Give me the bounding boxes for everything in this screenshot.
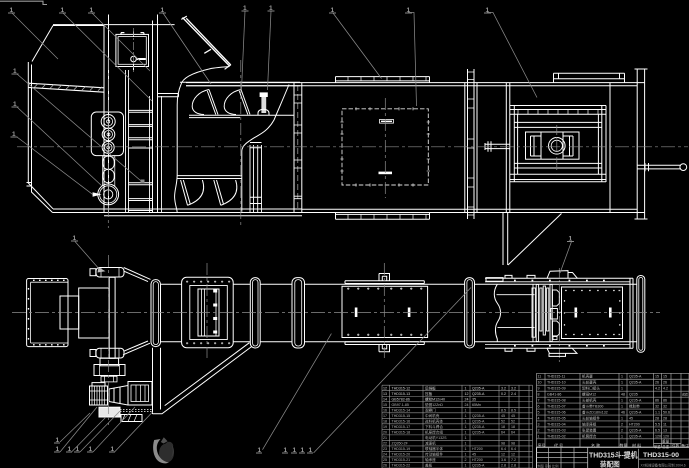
svg-text:15: 15 <box>655 375 659 379</box>
svg-text:9: 9 <box>538 387 540 391</box>
svg-text:机壳罩: 机壳罩 <box>582 374 593 379</box>
svg-text:1: 1 <box>465 419 467 423</box>
svg-text:3.2: 3.2 <box>511 386 516 390</box>
svg-text:45: 45 <box>629 416 633 420</box>
svg-text:Q235-A: Q235-A <box>472 386 485 390</box>
svg-text:26: 26 <box>383 464 387 468</box>
svg-text:中间机壳: 中间机壳 <box>425 413 440 418</box>
svg-text:18: 18 <box>511 425 515 429</box>
svg-text:GB41-86: GB41-86 <box>547 393 561 397</box>
svg-text:11: 11 <box>663 422 667 426</box>
svg-text:12: 12 <box>465 392 469 396</box>
svg-text:1: 1 <box>621 405 623 409</box>
svg-text:120: 120 <box>663 434 669 438</box>
svg-text:1: 1 <box>621 387 623 391</box>
svg-text:HT200: HT200 <box>629 422 640 426</box>
svg-text:重量: 重量 <box>662 439 670 444</box>
svg-text:1: 1 <box>465 464 467 468</box>
svg-text:4.2: 4.2 <box>663 387 668 391</box>
svg-text:12: 12 <box>501 453 505 457</box>
svg-text:98: 98 <box>501 442 505 446</box>
svg-text:联轴器半体: 联轴器半体 <box>425 446 443 451</box>
svg-text:总重: 总重 <box>662 444 669 449</box>
svg-text:畚斗ZD180x132: 畚斗ZD180x132 <box>582 409 608 414</box>
svg-text:THD315-17: THD315-17 <box>392 425 411 429</box>
svg-text:1: 1 <box>465 414 467 418</box>
svg-text:THD315-00: THD315-00 <box>643 452 679 459</box>
svg-text:1: 1 <box>465 425 467 429</box>
svg-text:THD315-06: THD315-06 <box>547 410 566 414</box>
svg-text:Q235-A: Q235-A <box>472 414 485 418</box>
svg-text:22: 22 <box>383 442 387 446</box>
svg-text:26: 26 <box>655 381 659 385</box>
svg-text:HT200: HT200 <box>472 447 483 451</box>
svg-text:装配图: 装配图 <box>599 460 620 468</box>
svg-text:2.8: 2.8 <box>501 464 506 468</box>
svg-text:13: 13 <box>383 392 387 396</box>
svg-text:1: 1 <box>621 416 623 420</box>
svg-text:8.5: 8.5 <box>501 408 506 412</box>
svg-text:1: 1 <box>621 434 623 438</box>
svg-text:THD315-22: THD315-22 <box>392 464 411 468</box>
svg-text:畚斗带TB300: 畚斗带TB300 <box>582 404 603 409</box>
svg-text:张紧装置: 张紧装置 <box>582 427 597 432</box>
svg-text:8: 8 <box>538 393 540 397</box>
svg-text:5.5: 5.5 <box>655 422 660 426</box>
svg-text:减速机: 减速机 <box>425 441 436 446</box>
svg-text:35: 35 <box>472 397 476 401</box>
svg-text:THD315-04: THD315-04 <box>547 422 566 426</box>
svg-text:32: 32 <box>655 405 659 409</box>
svg-text:2: 2 <box>538 428 540 432</box>
svg-text:52: 52 <box>511 419 515 423</box>
svg-text:7: 7 <box>538 399 540 403</box>
svg-text:1: 1 <box>621 375 623 379</box>
svg-text:THD315-09: THD315-09 <box>547 387 566 391</box>
svg-text:6: 6 <box>538 405 540 409</box>
svg-text:THD315-15: THD315-15 <box>392 414 411 418</box>
svg-text:16: 16 <box>383 408 387 412</box>
svg-text:Q235-A: Q235-A <box>629 428 642 432</box>
svg-text:机筒焊合: 机筒焊合 <box>582 433 597 438</box>
svg-text:头部机壳: 头部机壳 <box>582 398 597 403</box>
svg-text:单重: 单重 <box>654 444 661 449</box>
svg-text:45: 45 <box>501 414 505 418</box>
svg-text:26: 26 <box>663 381 667 385</box>
svg-text:17: 17 <box>383 414 387 418</box>
svg-text:THD315-13: THD315-13 <box>392 392 411 396</box>
svg-text:1: 1 <box>621 381 623 385</box>
svg-text:120: 120 <box>655 434 661 438</box>
svg-text:THD315-10: THD315-10 <box>547 381 566 385</box>
svg-text:18: 18 <box>501 425 505 429</box>
svg-text:1: 1 <box>465 442 467 446</box>
svg-text:THD315-19: THD315-19 <box>392 447 411 451</box>
svg-text:14: 14 <box>383 397 387 401</box>
svg-text:轴承座组: 轴承座组 <box>582 421 597 426</box>
svg-text:GB5782-86: GB5782-86 <box>392 397 410 401</box>
svg-text:6.5: 6.5 <box>655 428 660 432</box>
svg-text:10: 10 <box>538 381 542 385</box>
svg-text:13: 13 <box>663 428 667 432</box>
svg-text:盖板: 盖板 <box>425 463 433 468</box>
svg-text:2: 2 <box>621 422 623 426</box>
svg-text:THD315斗-提机: THD315斗-提机 <box>589 450 638 459</box>
svg-text:86: 86 <box>663 399 667 403</box>
svg-text:7.2: 7.2 <box>511 458 516 462</box>
svg-text:Q235-A: Q235-A <box>629 375 642 379</box>
svg-text:50.6: 50.6 <box>663 410 670 414</box>
svg-text:23: 23 <box>383 447 387 451</box>
svg-text:Q235-A: Q235-A <box>629 410 642 414</box>
svg-text:11: 11 <box>538 375 542 379</box>
svg-text:橡胶带: 橡胶带 <box>629 404 640 409</box>
svg-text:1: 1 <box>465 447 467 451</box>
svg-text:观察门: 观察门 <box>425 407 436 412</box>
svg-text:Q235-A: Q235-A <box>472 392 485 396</box>
svg-text:头轮轴组件: 头轮轴组件 <box>582 415 600 420</box>
svg-text:Q235-A: Q235-A <box>629 381 642 385</box>
svg-text:1: 1 <box>465 408 467 412</box>
svg-text:24: 24 <box>383 453 387 457</box>
svg-text:48: 48 <box>621 393 625 397</box>
svg-text:Q235-A: Q235-A <box>629 434 642 438</box>
svg-text:螺栓M12x40: 螺栓M12x40 <box>425 396 445 401</box>
svg-text:65Mn: 65Mn <box>472 403 481 407</box>
svg-text:THD315-11: THD315-11 <box>547 375 565 379</box>
svg-text:机座焊合组: 机座焊合组 <box>425 429 443 434</box>
svg-text:8.5: 8.5 <box>511 408 516 412</box>
svg-text:18: 18 <box>383 419 387 423</box>
svg-text:3: 3 <box>538 422 540 426</box>
svg-text:52: 52 <box>501 419 505 423</box>
svg-text:4: 4 <box>538 416 540 420</box>
svg-text:THD315-20: THD315-20 <box>392 453 411 457</box>
svg-text:轴承座: 轴承座 <box>425 457 436 462</box>
svg-text:1: 1 <box>621 399 623 403</box>
svg-text:Q235-A: Q235-A <box>472 419 485 423</box>
svg-text:制图 审核 比例: 制图 审核 比例 <box>538 464 559 468</box>
svg-text:5: 5 <box>538 410 540 414</box>
svg-text:THD315-05: THD315-05 <box>547 416 566 420</box>
svg-text:15: 15 <box>663 375 667 379</box>
svg-text:2.4: 2.4 <box>511 392 516 396</box>
svg-text:THD315-18: THD315-18 <box>392 430 411 434</box>
svg-text:19: 19 <box>383 425 387 429</box>
svg-text:Q235-A: Q235-A <box>629 399 642 403</box>
svg-text:0.2: 0.2 <box>501 392 506 396</box>
svg-text:24: 24 <box>465 397 469 401</box>
svg-text:15: 15 <box>383 403 387 407</box>
svg-text:12: 12 <box>383 386 387 390</box>
svg-text:46: 46 <box>621 410 625 414</box>
svg-text:4.2: 4.2 <box>655 387 660 391</box>
svg-text:28: 28 <box>663 416 667 420</box>
svg-text:20: 20 <box>383 430 387 434</box>
svg-text:1: 1 <box>538 434 540 438</box>
svg-text:THD315-03: THD315-03 <box>547 428 566 432</box>
svg-text:Q235-A: Q235-A <box>472 425 485 429</box>
svg-text:螺母M12: 螺母M12 <box>582 392 596 397</box>
svg-text:GB97.1-85: GB97.1-85 <box>392 403 409 407</box>
svg-text:45: 45 <box>472 453 476 457</box>
svg-text:HT200: HT200 <box>472 458 483 462</box>
svg-text:Q235-A: Q235-A <box>472 464 485 468</box>
svg-text:24: 24 <box>465 403 469 407</box>
svg-text:THD315-08: THD315-08 <box>547 399 566 403</box>
svg-text:传动轴组件: 传动轴组件 <box>425 452 443 457</box>
svg-text:64: 64 <box>511 430 515 434</box>
svg-text:电动机Y132S: 电动机Y132S <box>425 435 447 440</box>
svg-text:1.1: 1.1 <box>655 410 660 414</box>
svg-text:垫圈12ZnD: 垫圈12ZnD <box>425 402 443 407</box>
svg-text:28: 28 <box>655 416 659 420</box>
svg-text:1: 1 <box>465 453 467 457</box>
svg-text:Q235-A: Q235-A <box>472 430 485 434</box>
svg-text:3.2: 3.2 <box>501 386 506 390</box>
svg-text:进料机壳体: 进料机壳体 <box>425 418 443 423</box>
svg-text:压板: 压板 <box>425 391 433 396</box>
svg-text:卸料口接头: 卸料口接头 <box>582 386 600 391</box>
svg-text:6.4: 6.4 <box>501 447 506 451</box>
svg-text:6.4: 6.4 <box>511 447 516 451</box>
svg-text:98: 98 <box>511 442 515 446</box>
svg-text:3.6: 3.6 <box>501 458 506 462</box>
svg-text:1: 1 <box>465 430 467 434</box>
svg-text:THD315-14: THD315-14 <box>392 408 411 412</box>
svg-text:成套: 成套 <box>682 392 688 397</box>
svg-text:45: 45 <box>511 414 515 418</box>
svg-text:XX机械设备有限公司制 2004.6: XX机械设备有限公司制 2004.6 <box>641 462 686 467</box>
svg-text:1: 1 <box>465 436 467 440</box>
svg-text:下料斗焊合: 下料斗焊合 <box>425 424 443 429</box>
svg-text:THD315-02: THD315-02 <box>547 434 566 438</box>
svg-text:THD315-16: THD315-16 <box>392 419 411 423</box>
svg-text:25: 25 <box>383 458 387 462</box>
svg-text:头轮罩壳: 头轮罩壳 <box>582 380 597 385</box>
svg-text:32: 32 <box>663 405 667 409</box>
svg-text:Q235: Q235 <box>629 393 638 397</box>
svg-text:THD315-12: THD315-12 <box>392 386 411 390</box>
svg-text:ZQ350-2F: ZQ350-2F <box>392 442 409 446</box>
svg-text:THD315-07: THD315-07 <box>547 405 566 409</box>
svg-text:12: 12 <box>511 453 515 457</box>
svg-text:64: 64 <box>501 430 505 434</box>
svg-text:2.8: 2.8 <box>511 464 516 468</box>
svg-text:后挡板: 后挡板 <box>425 385 436 390</box>
svg-text:1: 1 <box>465 386 467 390</box>
svg-text:THD315-21: THD315-21 <box>392 458 411 462</box>
svg-text:86: 86 <box>655 399 659 403</box>
svg-text:2: 2 <box>465 458 467 462</box>
svg-text:2: 2 <box>621 428 623 432</box>
svg-text:21: 21 <box>383 436 387 440</box>
